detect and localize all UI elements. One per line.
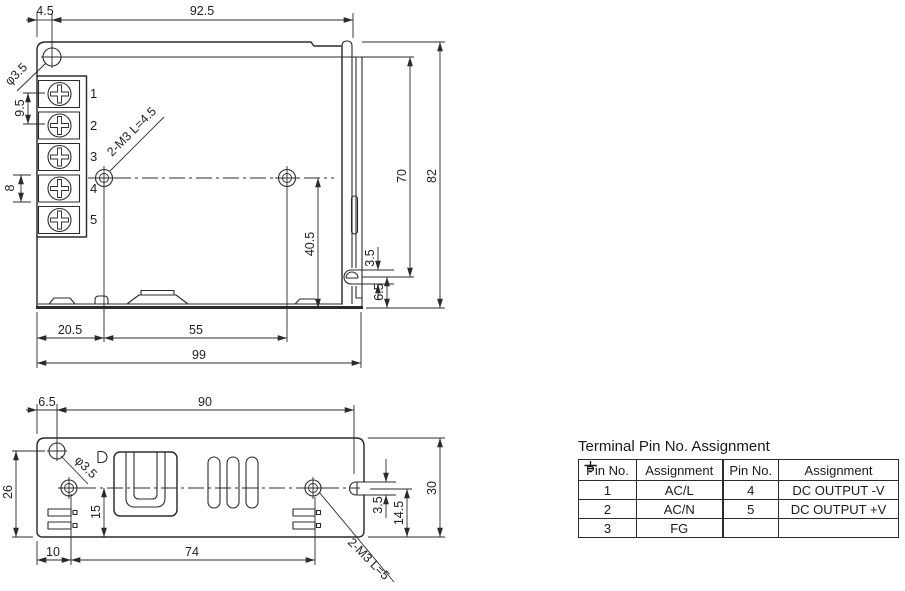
inlet-cutout: [114, 452, 177, 516]
terminal-number: 2: [90, 118, 97, 133]
pin-cell: 3: [579, 519, 637, 538]
m3-hole-cross: [58, 477, 80, 499]
table-row: 3 FG: [579, 519, 899, 538]
header-cell: Pin No.: [723, 460, 779, 481]
dim-label: 8: [3, 184, 17, 191]
dim-label: 3.5: [371, 496, 385, 513]
screw-note-label: 2-M3 L=5: [345, 535, 393, 583]
dim-label: 82: [425, 169, 439, 183]
bracket-keyhole-slot: [344, 270, 362, 284]
header-cell: Assignment: [779, 460, 899, 481]
dim-label: 55: [189, 323, 203, 337]
hole-dia-label: φ3.5: [72, 453, 100, 481]
pcb-slot-tab: [73, 511, 77, 515]
phillips-cross-icon: [51, 211, 69, 229]
table-header-row: Pin No. Assignment Pin No. Assignment: [579, 460, 899, 481]
phillips-cross-icon: [51, 180, 69, 198]
vent-slot: [208, 457, 220, 508]
assignment-cell: DC OUTPUT -V: [779, 481, 899, 500]
inlet-u-inner: [134, 452, 157, 499]
pcb-slot-tab: [73, 524, 77, 528]
assignment-cell: AC/N: [637, 500, 723, 519]
dim-label: 74: [185, 545, 199, 559]
pcb-slot-tab: [317, 524, 321, 528]
phillips-cross-icon: [51, 117, 69, 135]
pcb-slot: [48, 509, 71, 516]
pin-cell: 1: [579, 481, 637, 500]
terminal-screw: [48, 177, 71, 200]
table-row: 2 AC/N 5 DC OUTPUT +V: [579, 500, 899, 519]
dim-label: 3.5: [363, 249, 377, 266]
terminal-number: 5: [90, 212, 97, 227]
bracket-curl: [342, 41, 352, 304]
extension-lines: [12, 404, 445, 565]
top-view-outline: [37, 42, 342, 306]
terminal-screw: [48, 146, 71, 169]
terminal-screw: [48, 83, 71, 106]
dim-label: 4.5: [36, 4, 53, 18]
terminal-screw: [48, 209, 71, 232]
keyhole-slot: [350, 482, 364, 495]
pcb-slot: [293, 509, 315, 516]
dim-label: 15: [89, 505, 103, 519]
vent-slot: [227, 457, 239, 508]
pin-cell: [723, 519, 779, 538]
phillips-cross-icon: [51, 148, 69, 166]
dim-label: 30: [425, 481, 439, 495]
side-view: 6.5 90 26 15 10 74 3.5 14.5 30 φ3.5 2-M3…: [1, 395, 445, 583]
terminal-cells: [39, 81, 80, 234]
dim-label: 90: [198, 395, 212, 409]
dim-label: 10: [46, 545, 60, 559]
pin-cell: 2: [579, 500, 637, 519]
hole-dia-label: φ3.5: [2, 60, 30, 88]
terminal-number: 3: [90, 149, 97, 164]
dim-label: 6.5: [38, 395, 55, 409]
pin-cell: 5: [723, 500, 779, 519]
fg-label: FG: [670, 521, 688, 536]
dim-label: 9.5: [13, 99, 27, 116]
dim-label: 92.5: [190, 4, 214, 18]
pcb-slot-tab: [317, 511, 321, 515]
extension-lines: [13, 13, 445, 368]
pin-assignment-table: Pin No. Assignment Pin No. Assignment 1 …: [578, 459, 899, 538]
assignment-cell: AC/L: [637, 481, 723, 500]
screw-note-label: 2-M3 L=4.5: [104, 104, 159, 159]
dim-label: 40.5: [303, 232, 317, 256]
dim-label: 70: [395, 169, 409, 183]
pcb-slot: [293, 522, 315, 529]
pcb-slot: [48, 522, 71, 529]
dim-label: 26: [1, 485, 15, 499]
assignment-cell: [779, 519, 899, 538]
table-row: 1 AC/L 4 DC OUTPUT -V: [579, 481, 899, 500]
m3-hole-cross: [302, 477, 324, 499]
dim-label: 99: [192, 348, 206, 362]
base-tabs: [49, 295, 320, 304]
m3-hole-cross: [275, 166, 299, 190]
vent-slot: [246, 457, 258, 508]
terminal-number: 4: [90, 181, 97, 196]
dim-label: 14.5: [392, 501, 406, 525]
terminal-screw: [48, 114, 71, 137]
technical-drawing-page: 4.5 92.5 82 70 40.5 3.5 6.5 20.5 55 99 9…: [0, 0, 905, 591]
d-hole: [98, 452, 107, 463]
top-view: 4.5 92.5 82 70 40.5 3.5 6.5 20.5 55 99 9…: [2, 4, 445, 368]
assignment-cell: FG: [637, 519, 723, 538]
dim-label: 6.5: [372, 283, 386, 300]
terminal-number: 1: [90, 86, 97, 101]
earth-ground-icon: [583, 460, 598, 473]
phillips-cross-icon: [51, 85, 69, 103]
assignment-cell: DC OUTPUT +V: [779, 500, 899, 519]
pin-cell: 4: [723, 481, 779, 500]
pin-table-title: Terminal Pin No. Assignment: [578, 438, 770, 455]
corner-hole-cross: [47, 441, 67, 461]
base-tab-plate: [141, 291, 174, 296]
dim-label: 20.5: [58, 323, 82, 337]
header-cell: Assignment: [637, 460, 723, 481]
